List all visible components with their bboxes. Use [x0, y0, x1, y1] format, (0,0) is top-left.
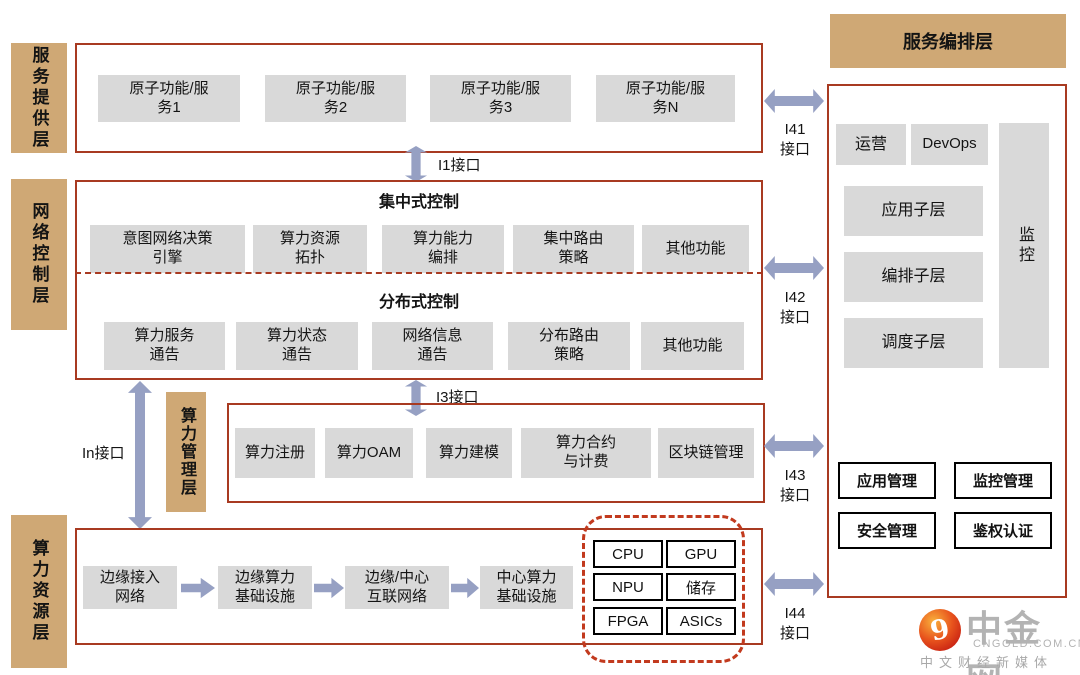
authentication-box: 鉴权认证	[954, 512, 1052, 549]
in-double-arrow-icon	[127, 381, 153, 529]
compute-registration-box: 算力注册	[235, 428, 315, 478]
layer-label-resource: 算力资源层	[11, 515, 67, 668]
i43-interface-label: I43 接口	[768, 466, 822, 505]
chip-fpga: FPGA	[593, 607, 663, 635]
layer-label-service: 服务提供层	[11, 43, 67, 153]
distributed-other-functions-box: 其他功能	[641, 322, 744, 370]
edge-compute-infrastructure-box: 边缘算力 基础设施	[218, 566, 312, 609]
compute-oam-box: 算力OAM	[325, 428, 413, 478]
centralized-other-functions-box: 其他功能	[642, 225, 749, 273]
distributed-routing-policy-box: 分布路由 策略	[508, 322, 630, 370]
i41-interface-label: I41 接口	[768, 120, 822, 159]
chip-cpu: CPU	[593, 540, 663, 568]
intent-decision-engine-box: 意图网络决策 引擎	[90, 225, 245, 273]
i1-double-arrow-icon	[404, 146, 428, 182]
flow-arrow-2-icon	[314, 577, 344, 599]
i44-interface-label: I44 接口	[768, 604, 822, 643]
security-management-box: 安全管理	[838, 512, 936, 549]
compute-service-announcement-box: 算力服务 通告	[104, 322, 225, 370]
chip-npu: NPU	[593, 573, 663, 601]
compute-contract-billing-box: 算力合约 与计费	[521, 428, 651, 478]
central-routing-policy-box: 集中路由 策略	[513, 225, 634, 273]
devops-box: DevOps	[911, 124, 988, 165]
compute-capability-orchestration-box: 算力能力 编排	[382, 225, 504, 273]
i1-interface-label: I1接口	[438, 156, 481, 176]
scheduling-sublayer-box: 调度子层	[844, 318, 983, 368]
i42-double-arrow-icon	[764, 255, 824, 281]
orchestration-layer-header: 服务编排层	[830, 14, 1066, 68]
i43-double-arrow-icon	[764, 433, 824, 459]
compute-status-announcement-box: 算力状态 通告	[236, 322, 358, 370]
in-interface-label: In接口	[82, 444, 125, 464]
monitoring-management-box: 监控管理	[954, 462, 1052, 499]
network-info-announcement-box: 网络信息 通告	[372, 322, 493, 370]
i42-interface-label: I42 接口	[768, 288, 822, 327]
layer-label-management: 算力管理层	[166, 392, 206, 512]
compute-resource-topology-box: 算力资源 拓扑	[253, 225, 367, 273]
cngold-logo-icon: 9	[918, 608, 962, 652]
monitoring-column: 监控	[999, 123, 1049, 368]
chip-storage: 储存	[666, 573, 736, 601]
atomic-service-2: 原子功能/服 务2	[265, 75, 406, 122]
atomic-service-n: 原子功能/服 务N	[596, 75, 735, 122]
flow-arrow-1-icon	[181, 577, 215, 599]
i44-double-arrow-icon	[764, 571, 824, 597]
distributed-control-title: 分布式控制	[75, 288, 763, 312]
edge-center-interconnect-box: 边缘/中心 互联网络	[345, 566, 449, 609]
edge-access-network-box: 边缘接入 网络	[83, 566, 177, 609]
control-divider	[75, 272, 763, 274]
cngold-domain-text: CNGOLD.COM.CN	[973, 638, 1080, 650]
layer-label-network: 网络控制层	[11, 179, 67, 330]
compute-modeling-box: 算力建模	[426, 428, 512, 478]
application-management-box: 应用管理	[838, 462, 936, 499]
blockchain-management-box: 区块链管理	[658, 428, 754, 478]
chip-gpu: GPU	[666, 540, 736, 568]
central-compute-infrastructure-box: 中心算力 基础设施	[480, 566, 573, 609]
architecture-diagram: 服务提供层 网络控制层 算力资源层 算力管理层 原子功能/服 务1 原子功能/服…	[0, 0, 1080, 675]
atomic-service-3: 原子功能/服 务3	[430, 75, 571, 122]
centralized-control-title: 集中式控制	[75, 188, 763, 212]
orchestration-sublayer-box: 编排子层	[844, 252, 983, 302]
cngold-logo: 9 中金网 CNGOLD.COM.CN 中文财经新媒体	[918, 604, 1068, 670]
chip-asics: ASICs	[666, 607, 736, 635]
atomic-service-1: 原子功能/服 务1	[98, 75, 240, 122]
i41-double-arrow-icon	[764, 88, 824, 114]
application-sublayer-box: 应用子层	[844, 186, 983, 236]
flow-arrow-3-icon	[451, 577, 479, 599]
cngold-tagline-text: 中文财经新媒体	[920, 652, 1053, 671]
operations-box: 运营	[836, 124, 906, 165]
